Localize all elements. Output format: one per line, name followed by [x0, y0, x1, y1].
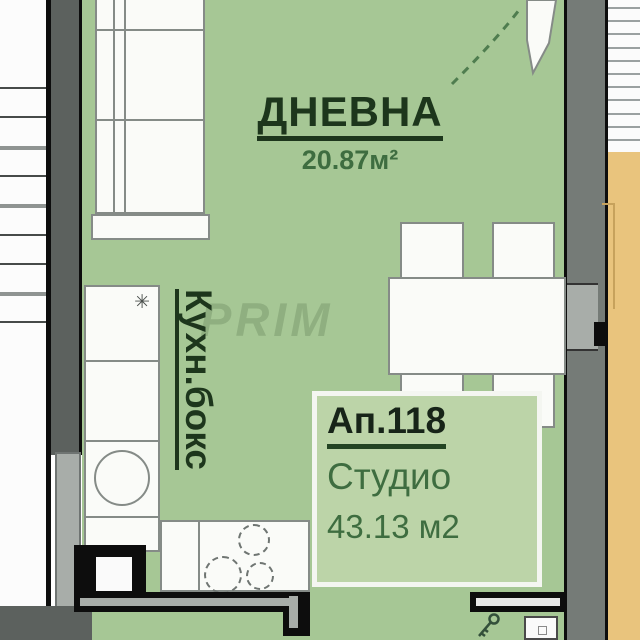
door-swing — [440, 0, 570, 95]
counter-divider — [86, 516, 158, 518]
key-icon — [472, 612, 502, 640]
sofa — [95, 0, 205, 214]
fixture-mark — [538, 626, 547, 635]
stair-line — [0, 234, 46, 236]
kitchen-counter: ✳ — [84, 285, 160, 552]
apartment-area: 43.13 м2 — [327, 508, 537, 546]
stair-line — [0, 116, 46, 118]
bottom-wall-core — [80, 598, 289, 606]
sofa-armrest — [91, 214, 210, 240]
sofa-backrest-line — [113, 0, 126, 212]
living-room-area: 20.87м² — [238, 145, 462, 176]
apartment-type: Студио — [327, 457, 537, 498]
adjacent-area-line — [613, 203, 615, 309]
stair-line — [0, 146, 46, 150]
chair — [492, 222, 555, 284]
stair-line — [0, 204, 46, 208]
shaft-opening — [96, 557, 132, 591]
stair-line — [0, 321, 46, 323]
counter-divider — [198, 522, 200, 590]
stair-line — [0, 292, 46, 296]
burner-icon — [204, 556, 242, 594]
right-wall-notch — [594, 322, 607, 346]
apartment-number: Ап.118 — [327, 402, 446, 449]
left-wall — [51, 0, 82, 455]
counter-divider — [86, 440, 158, 442]
kitchen-counter-bottom — [160, 520, 310, 592]
sofa-cushion-line — [97, 119, 203, 121]
stair-line — [0, 263, 46, 265]
burner-icon — [246, 562, 274, 590]
chair — [400, 222, 464, 284]
stair-line — [0, 175, 46, 177]
living-room-name: ДНЕВНА — [257, 90, 442, 141]
sofa-cushion-line — [97, 29, 203, 31]
stove-icon: ✳ — [134, 293, 150, 312]
stair-line — [0, 87, 46, 89]
entry-fixture — [524, 616, 558, 640]
sink-icon — [94, 450, 150, 506]
door-leaf-icon — [527, 0, 556, 73]
bottom-wall-jog-core — [289, 596, 298, 628]
floor-plan: ✳ PRIM ДНЕВНА 20.87м² — [0, 0, 640, 640]
stairwell-left — [0, 0, 46, 606]
burner-icon — [238, 524, 270, 556]
bottom-wall-right-core — [476, 598, 560, 606]
dining-table — [388, 277, 566, 375]
apartment-label-box: Ап.118 Студио 43.13 м2 — [312, 391, 542, 587]
counter-divider — [86, 360, 158, 362]
kitchen-label: Кухн.бокс — [175, 289, 217, 470]
living-room-label: ДНЕВНА 20.87м² — [238, 90, 462, 176]
